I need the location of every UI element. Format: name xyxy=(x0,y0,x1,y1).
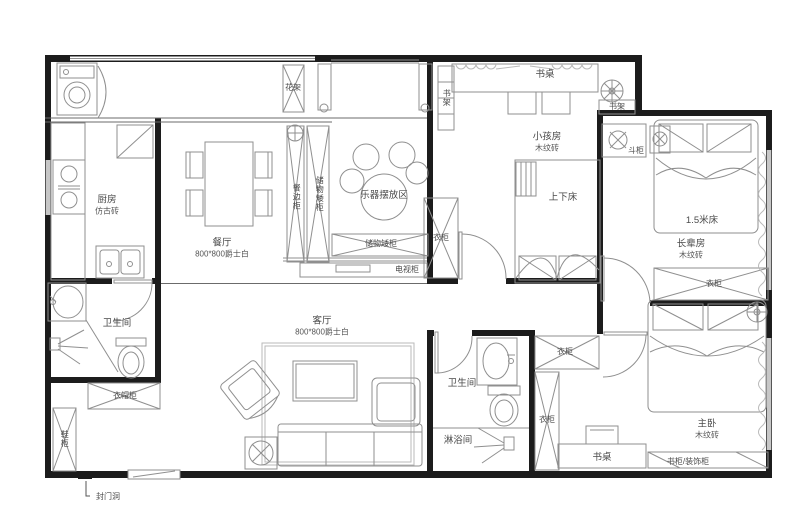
room-floor: 木纹砖 xyxy=(677,251,706,261)
armchair-icon xyxy=(219,359,284,425)
room-name: 餐厅 xyxy=(195,238,249,250)
floor-plan: 厨房 仿古砖 餐厅 800*800爵士白 客厅 800*800爵士白 小孩房 木… xyxy=(0,0,793,509)
curtain-icon xyxy=(456,64,592,69)
label-bath-wardrobe-side: 衣柜 xyxy=(539,415,555,425)
sofa-icon xyxy=(278,378,422,466)
room-name: 厨房 xyxy=(95,195,119,207)
label-instrument-area: 乐器摆放区 xyxy=(360,190,408,202)
seal-door-leader xyxy=(86,481,90,496)
floor-plan-drawing xyxy=(0,0,793,509)
room-floor: 木纹砖 xyxy=(695,431,719,441)
ceiling-lamp-icon xyxy=(287,125,303,141)
label-sideboard: 餐边柜 xyxy=(291,184,301,211)
room-floor: 木纹砖 xyxy=(533,144,562,154)
room-floor: 800*800爵士白 xyxy=(195,250,249,260)
label-seal-door: 封门洞 xyxy=(96,492,120,502)
label-cloak-cabinet: 衣帽柜 xyxy=(113,391,137,401)
room-label-elders: 长辈房 木纹砖 xyxy=(677,239,706,262)
room-floor: 800*800爵士白 xyxy=(295,328,349,338)
room-floor: 仿古砖 xyxy=(95,207,119,217)
room-name: 小孩房 xyxy=(533,132,562,144)
shower-icon xyxy=(474,428,514,463)
toilet-icon xyxy=(488,386,520,426)
bath-left-fixtures xyxy=(48,283,146,378)
washbasin-icon xyxy=(48,283,86,321)
room-label-kids: 小孩房 木纹砖 xyxy=(533,132,562,155)
coffee-table-icon xyxy=(293,361,357,401)
room-label-kitchen: 厨房 仿古砖 xyxy=(95,195,119,218)
ceiling-fan-icon xyxy=(601,80,623,102)
room-label-dining: 餐厅 800*800爵士白 xyxy=(195,238,249,261)
label-bookshelf-right: 书架 xyxy=(609,102,625,112)
label-master-desk: 书桌 xyxy=(592,452,611,464)
doors xyxy=(114,60,650,479)
kids-desk-icon xyxy=(452,64,598,114)
room-name: 客厅 xyxy=(295,316,349,328)
label-kids-desk: 书桌 xyxy=(535,69,554,81)
room-label-living: 客厅 800*800爵士白 xyxy=(295,316,349,339)
label-master-bookcase: 书柜/装饰柜 xyxy=(667,457,709,467)
label-elders-wardrobe: 衣柜 xyxy=(706,279,722,289)
toilet-icon xyxy=(116,338,146,378)
label-kids-wardrobe: 衣柜 xyxy=(433,233,449,243)
washing-machine-icon xyxy=(57,63,106,118)
room-label-bath-left: 卫生间 xyxy=(103,318,132,330)
curtain-right-master xyxy=(759,342,766,450)
label-storage-cabinet-v: 储物矮柜 xyxy=(314,176,324,212)
label-bath-wardrobe-top: 衣柜 xyxy=(557,347,573,357)
label-tv-cabinet: 电视柜 xyxy=(395,265,419,275)
curtain-right-elders xyxy=(759,152,766,296)
side-table-fan-icon xyxy=(245,437,277,469)
dining-table-icon xyxy=(186,142,272,226)
label-flower-rack: 花架 xyxy=(285,83,301,93)
bunk-bed-icon xyxy=(515,160,600,283)
tv-icon xyxy=(336,265,370,272)
shower-icon xyxy=(50,330,88,364)
label-storage-cabinet-h: 储物矮柜 xyxy=(365,239,397,249)
label-shoe-cabinet: 鞋柜 xyxy=(59,430,69,448)
washbasin-icon xyxy=(477,338,517,385)
kitchen-sink-icon xyxy=(96,246,144,278)
room-label-shower: 淋浴间 xyxy=(444,435,473,447)
room-name: 长辈房 xyxy=(677,239,706,251)
drum-set-icon xyxy=(340,142,428,220)
label-bookshelf-left: 书架 xyxy=(441,89,451,107)
label-elders-bed: 1.5米床 xyxy=(686,215,718,227)
stove-icon xyxy=(53,160,85,214)
room-label-bath-right: 卫生间 xyxy=(448,378,477,390)
room-label-master: 主卧 木纹砖 xyxy=(695,419,719,442)
label-bunk-bed: 上下床 xyxy=(549,192,578,204)
room-name: 主卧 xyxy=(695,419,719,431)
label-chest: 斗柜 xyxy=(628,146,644,156)
